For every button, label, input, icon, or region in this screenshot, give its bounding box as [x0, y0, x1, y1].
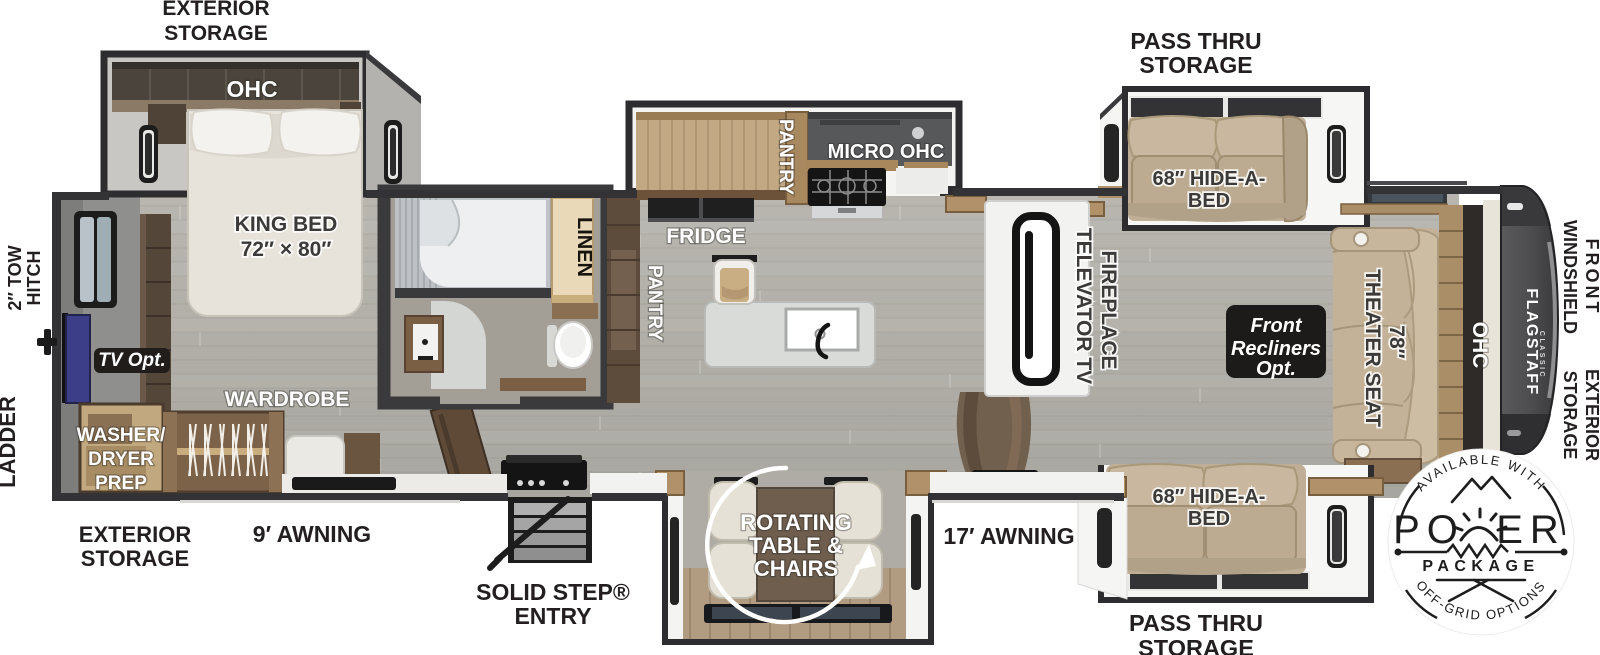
svg-text:ENTRY: ENTRY — [514, 603, 591, 629]
svg-text:BED: BED — [1188, 508, 1230, 530]
svg-text:CLASSIC: CLASSIC — [1538, 331, 1545, 379]
svg-text:TV Opt.: TV Opt. — [98, 350, 166, 371]
svg-text:PASS THRU: PASS THRU — [1130, 28, 1261, 54]
svg-text:EXTERIOR: EXTERIOR — [162, 0, 269, 20]
svg-text:KING BED: KING BED — [235, 213, 338, 236]
svg-text:ER: ER — [1496, 508, 1566, 552]
svg-text:9′ AWNING: 9′ AWNING — [253, 521, 371, 547]
svg-text:MICRO OHC: MICRO OHC — [828, 141, 945, 163]
svg-text:TELEVATOR TV: TELEVATOR TV — [1072, 228, 1095, 384]
svg-text:68″ HIDE-A-: 68″ HIDE-A- — [1153, 486, 1266, 508]
svg-text:Front: Front — [1250, 315, 1302, 337]
svg-text:PREP: PREP — [95, 473, 147, 494]
svg-text:72″ × 80″: 72″ × 80″ — [241, 238, 332, 261]
svg-text:Opt.: Opt. — [1256, 358, 1296, 380]
svg-text:DRYER: DRYER — [88, 449, 154, 470]
svg-text:LADDER: LADDER — [0, 396, 20, 488]
svg-text:STORAGE: STORAGE — [1139, 52, 1252, 78]
svg-text:PACKAGE: PACKAGE — [1422, 558, 1539, 575]
svg-text:EXTERIOR: EXTERIOR — [79, 522, 192, 547]
svg-text:STORAGE: STORAGE — [1138, 635, 1254, 655]
svg-text:PANTRY: PANTRY — [644, 265, 665, 341]
svg-text:2″ TOWHITCH: 2″ TOWHITCH — [5, 245, 44, 310]
svg-text:BED: BED — [1188, 190, 1230, 212]
svg-text:OHC: OHC — [1468, 322, 1491, 369]
svg-text:17′ AWNING: 17′ AWNING — [943, 523, 1074, 549]
svg-text:Recliners: Recliners — [1231, 338, 1321, 360]
svg-text:STORAGE: STORAGE — [81, 546, 189, 571]
svg-text:FRIDGE: FRIDGE — [666, 225, 745, 248]
svg-text:THEATER SEAT: THEATER SEAT — [1361, 269, 1384, 427]
svg-text:FIREPLACE: FIREPLACE — [1097, 250, 1120, 369]
svg-text:78″: 78″ — [1385, 325, 1408, 358]
svg-text:PASS THRU: PASS THRU — [1129, 610, 1263, 636]
svg-text:STORAGE: STORAGE — [164, 22, 267, 45]
svg-text:ROTATING: ROTATING — [740, 510, 852, 535]
svg-text:CHAIRS: CHAIRS — [754, 556, 838, 581]
svg-text:SOLID STEP®: SOLID STEP® — [476, 579, 630, 605]
svg-text:WARDROBE: WARDROBE — [225, 388, 350, 411]
svg-text:OHC: OHC — [226, 76, 277, 102]
svg-text:FLAGSTAFF: FLAGSTAFF — [1523, 288, 1540, 395]
svg-text:68″ HIDE-A-: 68″ HIDE-A- — [1153, 168, 1266, 190]
svg-text:EXTERIORSTORAGE: EXTERIORSTORAGE — [1560, 369, 1600, 461]
svg-text:TABLE &: TABLE & — [749, 533, 843, 558]
svg-text:WASHER/: WASHER/ — [77, 425, 166, 446]
svg-text:LINEN: LINEN — [573, 217, 595, 277]
svg-text:PANTRY: PANTRY — [775, 119, 796, 195]
